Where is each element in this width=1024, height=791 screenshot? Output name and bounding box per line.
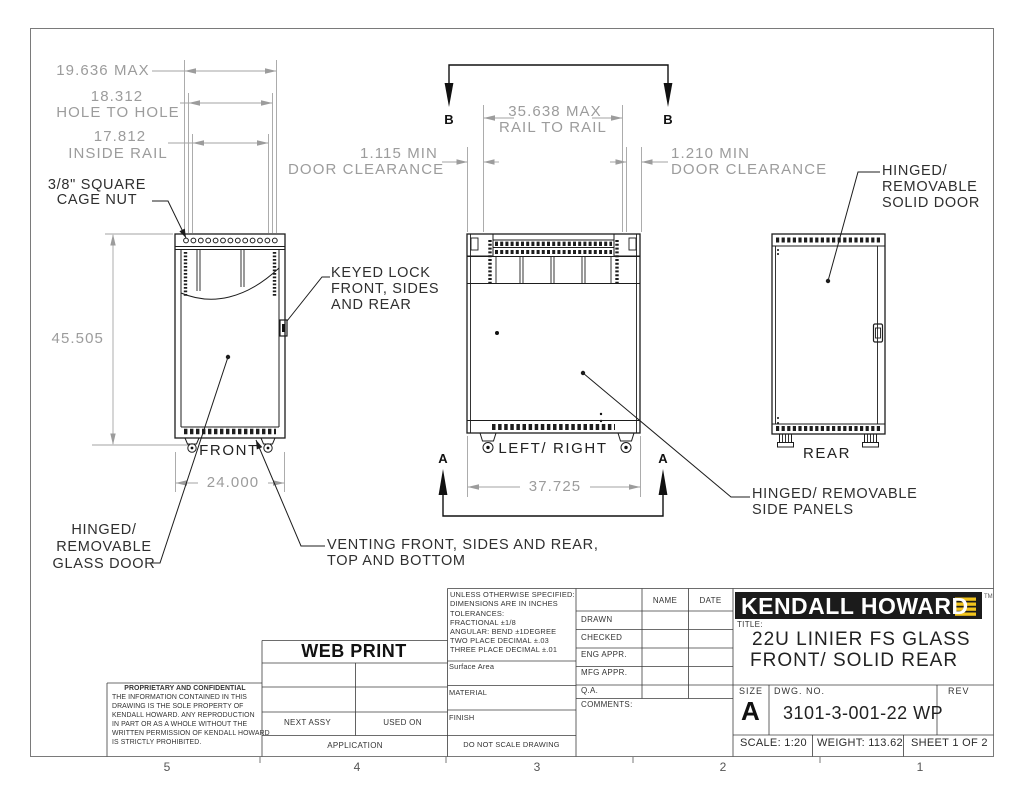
callout-glass-door-line3: GLASS DOOR — [45, 557, 163, 572]
approval-row-checked: CHECKED — [581, 634, 622, 642]
tolerance-note-line-5: ANGULAR: BEND ±1DEGREE — [450, 628, 556, 636]
dwg-no-label: DWG. NO. — [774, 687, 825, 696]
proprietary-line-4: IN PART OR AS A WHOLE WITHOUT THE — [112, 721, 247, 728]
tolerance-note-line-3: TOLERANCES: — [450, 610, 504, 618]
callout-venting-line1: VENTING FRONT, SIDES AND REAR, — [327, 538, 599, 553]
proprietary-line-2: DRAWING IS THE SOLE PROPERTY OF — [112, 703, 244, 710]
dim-door-clearance-right-label: DOOR CLEARANCE — [671, 162, 827, 178]
dim-rail-to-rail-label: RAIL TO RAIL — [493, 120, 613, 136]
callout-solid-door-line2: REMOVABLE — [882, 180, 977, 195]
tolerance-note-line-6: TWO PLACE DECIMAL ±.03 — [450, 637, 549, 645]
weight-value: WEIGHT: 113.62 — [817, 738, 903, 750]
rear-view-linework — [772, 234, 885, 447]
dim-front-width: 24.000 — [198, 475, 268, 491]
proprietary-title: PROPRIETARY AND CONFIDENTIAL — [109, 685, 261, 692]
next-assy-label: NEXT ASSY — [265, 719, 350, 727]
surface-area-label: Surface Area — [449, 663, 494, 671]
drawing-title-line2: FRONT/ SOLID REAR — [750, 651, 958, 671]
dim-hole-to-hole-value: 18.312 — [67, 89, 167, 105]
dim-hole-to-hole-label: HOLE TO HOLE — [48, 105, 188, 121]
dim-height: 45.505 — [32, 331, 104, 347]
dim-door-clearance-left-label: DOOR CLEARANCE — [288, 162, 438, 178]
callout-keyed-lock-line2: FRONT, SIDES — [331, 282, 439, 297]
dim-inside-rail-value: 17.812 — [70, 129, 170, 145]
material-label: MATERIAL — [449, 689, 487, 697]
callout-solid-door-line1: HINGED/ — [882, 164, 947, 179]
callout-glass-door-line2: REMOVABLE — [45, 540, 163, 555]
approval-row-eng-appr: ENG APPR. — [581, 651, 627, 659]
drawing-number: 3101-3-001-22 WP — [783, 704, 943, 723]
callout-side-panels-line1: HINGED/ REMOVABLE — [752, 487, 918, 502]
callout-cage-nut-line2: CAGE NUT — [38, 193, 156, 208]
callout-side-panels-line2: SIDE PANELS — [752, 503, 854, 518]
web-print-stamp: WEB PRINT — [284, 642, 424, 661]
zone-number-1: 1 — [910, 761, 930, 774]
do-not-scale-note: DO NOT SCALE DRAWING — [447, 741, 576, 749]
zone-number-4: 4 — [347, 761, 367, 774]
size-value: A — [741, 698, 760, 725]
application-label: APPLICATION — [300, 742, 410, 750]
view-label-rear: REAR — [787, 446, 867, 462]
rev-label: REV — [948, 687, 970, 696]
dim-rail-to-rail-value: 35.638 MAX — [495, 104, 615, 120]
dim-max-width: 19.636 MAX — [43, 63, 163, 79]
proprietary-line-5: WRITTEN PERMISSION OF KENDALL HOWARD — [112, 730, 270, 737]
approval-row-qa: Q.A. — [581, 687, 598, 695]
section-marker-a-right: A — [655, 452, 671, 466]
drawing-sheet: 19.636 MAX 18.312 HOLE TO HOLE 17.812 IN… — [0, 0, 1024, 791]
proprietary-line-1: THE INFORMATION CONTAINED IN THIS — [112, 694, 247, 701]
section-marker-b-left: B — [441, 113, 457, 127]
front-view-linework — [175, 234, 287, 452]
view-label-front: FRONT — [189, 443, 269, 459]
tolerance-note-line-7: THREE PLACE DECIMAL ±.01 — [450, 646, 557, 654]
drawing-title-line1: 22U LINIER FS GLASS — [752, 630, 971, 650]
tolerance-note-line-4: FRACTIONAL ±1/8 — [450, 619, 516, 627]
callout-keyed-lock-line3: AND REAR — [331, 298, 412, 313]
proprietary-line-6: IS STRICTLY PROHIBITED. — [112, 739, 201, 746]
callout-keyed-lock-line1: KEYED LOCK — [331, 266, 431, 281]
callout-glass-door-line1: HINGED/ — [45, 523, 163, 538]
zone-number-5: 5 — [157, 761, 177, 774]
dim-door-clearance-right-value: 1.210 MIN — [671, 146, 750, 162]
logo-kendall-howard: KENDALL HOWARD — [741, 594, 969, 618]
sheet-number: SHEET 1 OF 2 — [911, 738, 988, 750]
zone-number-2: 2 — [713, 761, 733, 774]
view-label-left-right: LEFT/ RIGHT — [493, 441, 613, 457]
tolerance-note-line-2: DIMENSIONS ARE IN INCHES — [450, 600, 558, 608]
finish-label: FINISH — [449, 714, 474, 722]
proprietary-line-3: KENDALL HOWARD. ANY REPRODUCTION — [112, 712, 255, 719]
callout-solid-door-line3: SOLID DOOR — [882, 196, 980, 211]
logo-trademark: TM — [984, 594, 993, 600]
dim-side-depth: 37.725 — [520, 479, 590, 495]
approval-row-drawn: DRAWN — [581, 616, 612, 624]
dim-door-clearance-left-value: 1.115 MIN — [330, 146, 438, 162]
section-marker-a-left: A — [435, 452, 451, 466]
leader-terminators — [179, 229, 830, 450]
approvals-date-header: DATE — [688, 597, 733, 605]
approvals-name-header: NAME — [642, 597, 688, 605]
side-view-linework — [467, 234, 640, 453]
callout-cage-nut-line1: 3/8" SQUARE — [38, 178, 156, 193]
section-marker-b-right: B — [660, 113, 676, 127]
dim-inside-rail-label: INSIDE RAIL — [48, 146, 188, 162]
zone-number-3: 3 — [527, 761, 547, 774]
used-on-label: USED ON — [360, 719, 445, 727]
comments-label: COMMENTS: — [581, 701, 633, 709]
approval-row-mfg-appr: MFG APPR. — [581, 669, 627, 677]
callout-venting-line2: TOP AND BOTTOM — [327, 554, 466, 569]
scale-value: SCALE: 1:20 — [740, 738, 807, 750]
tolerance-note-line-1: UNLESS OTHERWISE SPECIFIED: — [450, 591, 575, 599]
